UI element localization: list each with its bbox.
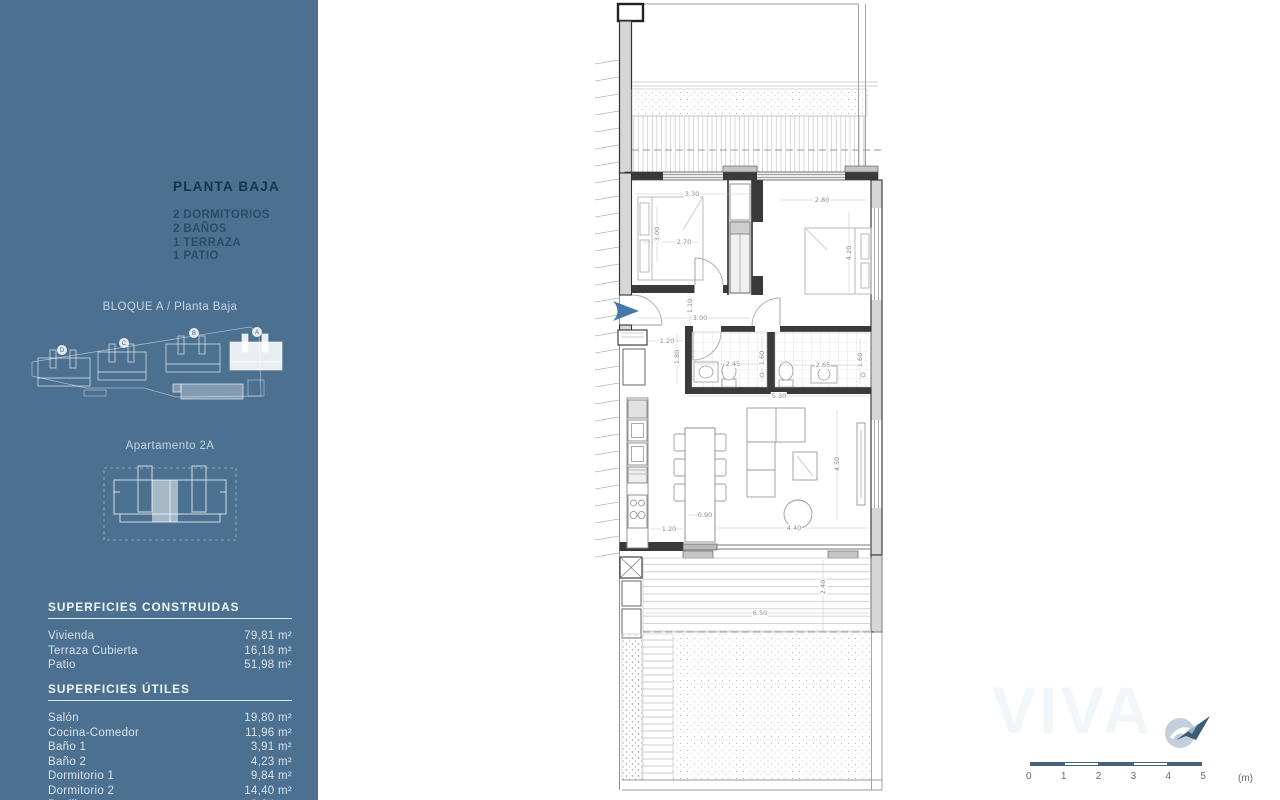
- living-room: [747, 408, 865, 528]
- dimension-label: 4.20: [845, 245, 853, 261]
- divider: [48, 700, 292, 701]
- scale-unit: (m): [1238, 773, 1253, 784]
- dimension-label: 1.20: [659, 337, 675, 345]
- scale-bar-segments: [1030, 762, 1202, 766]
- dining-island: [674, 428, 726, 542]
- built-table: Vivienda79,81 m² Terraza Cubierta16,18 m…: [48, 629, 292, 673]
- dimension-label: 1.80: [673, 349, 681, 365]
- entrance: [613, 295, 662, 385]
- kitchen: [627, 398, 648, 548]
- table-row: Cocina-Comedor11,96 m²: [48, 726, 292, 741]
- dimension-label: 0.90: [697, 511, 713, 519]
- page: PLANTA BAJA 2 DORMITORIOS 2 BAÑOS 1 TERR…: [0, 0, 1280, 800]
- plan-title: PLANTA BAJA: [173, 179, 280, 194]
- useful-table-title: SUPERFICIES ÚTILES: [48, 682, 292, 696]
- dimension-label: 1.60: [758, 350, 766, 366]
- table-row: Salón19,80 m²: [48, 711, 292, 726]
- table-row: Baño 13,91 m²: [48, 740, 292, 755]
- dimension-label: 1.20: [661, 525, 677, 533]
- wardrobe: [730, 184, 750, 293]
- dimension-label: 2.40: [819, 579, 827, 595]
- apartment-caption: Apartamento 2A: [50, 440, 290, 452]
- site-buildings: [38, 334, 282, 399]
- watermark: VIVA: [992, 672, 1153, 748]
- sidebar: PLANTA BAJA 2 DORMITORIOS 2 BAÑOS 1 TERR…: [0, 0, 318, 800]
- bedroom-2: [752, 228, 871, 326]
- svg-text:B: B: [192, 331, 196, 337]
- block-caption: BLOQUE A / Planta Baja: [50, 301, 290, 313]
- terrace: [620, 557, 882, 638]
- dimension-label: 3.00: [653, 226, 661, 242]
- dimension-label: 2.45: [725, 360, 741, 368]
- dimension-label: 3.00: [692, 314, 708, 322]
- useful-table: Salón19,80 m² Cocina-Comedor11,96 m² Bañ…: [48, 711, 292, 800]
- svg-text:D: D: [60, 348, 65, 354]
- table-row: Dormitorio 214,40 m²: [48, 784, 292, 799]
- dimension-label: 1.10: [686, 298, 694, 314]
- section-hatch: [595, 60, 619, 557]
- floor-plan-drawing: [595, 0, 905, 800]
- feature-item: 2 BAÑOS: [173, 223, 270, 237]
- dimension-label: 4.50: [833, 456, 841, 472]
- dimension-label: 6.50: [752, 609, 768, 617]
- table-row: Patio51,98 m²: [48, 658, 292, 673]
- dimension-label: 2.70: [676, 238, 692, 246]
- dimension-label: 4.40: [786, 524, 802, 532]
- floor-plan: 3.302.803.002.704.201.103.001.201.802.45…: [595, 0, 905, 800]
- site-plan-diagram: D C B A: [26, 318, 302, 412]
- table-row: Baño 24,23 m²: [48, 755, 292, 770]
- dimension-label: 3.30: [684, 190, 700, 198]
- svg-text:A: A: [255, 330, 259, 336]
- upper-terrace: [618, 4, 884, 173]
- feature-item: 2 DORMITORIOS: [173, 209, 270, 223]
- feature-item: 1 TERRAZA: [173, 237, 270, 251]
- feature-item: 1 PATIO: [173, 250, 270, 264]
- table-row: Terraza Cubierta16,18 m²: [48, 644, 292, 659]
- built-table-title: SUPERFICIES CONSTRUIDAS: [48, 600, 292, 614]
- brand-logo: [1158, 710, 1214, 752]
- divider: [48, 618, 292, 619]
- scale-bar: 0 1 2 3 4 5: [1030, 762, 1230, 782]
- table-row: Vivienda79,81 m²: [48, 629, 292, 644]
- table-row: Dormitorio 19,84 m²: [48, 769, 292, 784]
- highlighted-unit: [152, 480, 178, 522]
- apartment-diagram: [100, 458, 240, 550]
- dimension-label: 2.80: [814, 196, 830, 204]
- dimension-label: 1.60: [856, 352, 864, 368]
- scale-bar-ticks: 0 1 2 3 4 5: [1026, 771, 1206, 782]
- feature-list: 2 DORMITORIOS 2 BAÑOS 1 TERRAZA 1 PATIO: [173, 209, 270, 264]
- svg-text:C: C: [122, 341, 127, 347]
- dimension-label: 5.30: [771, 392, 787, 400]
- dimension-label: 2.65: [815, 361, 831, 369]
